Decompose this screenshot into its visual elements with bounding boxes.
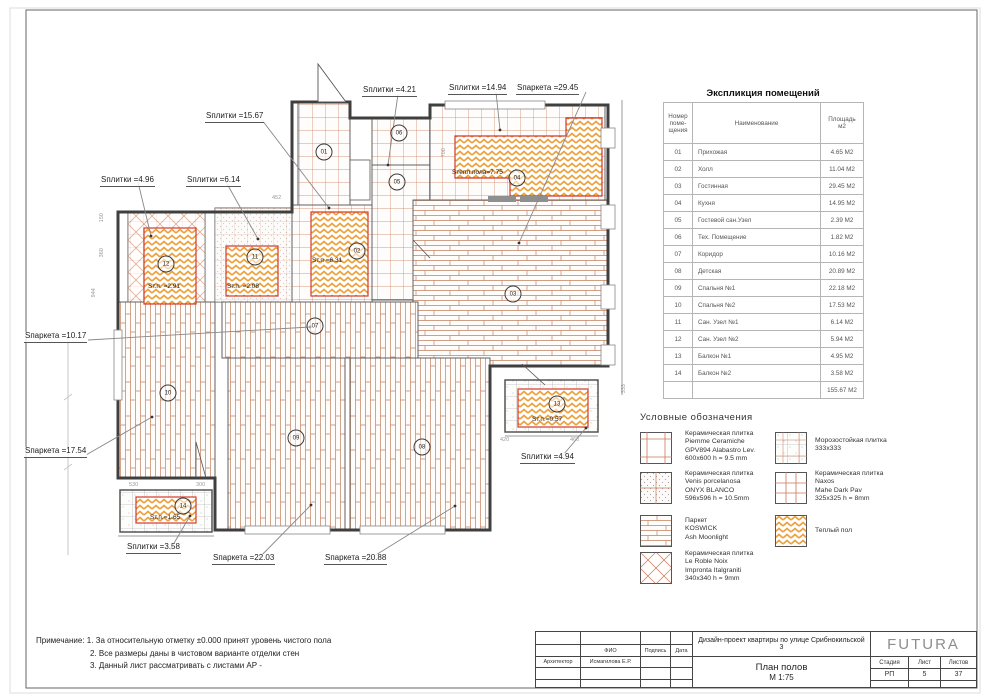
legend-swatch-naxos bbox=[775, 472, 807, 504]
room-schedule-table: Номер поме- щения Наименование Площадь м… bbox=[663, 102, 864, 399]
legend-title: Условные обозначения bbox=[640, 412, 753, 423]
warm-area-label: Sт.п.=0.57 bbox=[532, 417, 562, 424]
warm-area-label: Sтепл.пола=7.75 bbox=[452, 170, 503, 177]
window-right-1 bbox=[601, 128, 615, 148]
empty-cell bbox=[664, 382, 693, 399]
empty-cell bbox=[581, 668, 641, 679]
empty-cell bbox=[871, 681, 909, 687]
table-row: 06Тех. Помещение1.82 М2 bbox=[664, 229, 864, 246]
room-number: 01 bbox=[316, 144, 333, 161]
boundary-line bbox=[64, 335, 72, 555]
fio-header: ФИО bbox=[581, 645, 641, 656]
title-block-meta: FUTURA Стадия Лист Листов РП 5 37 bbox=[871, 632, 976, 687]
futura-logo: FUTURA bbox=[887, 636, 960, 653]
schedule-title: Экспликция помещений bbox=[663, 88, 863, 99]
col-room-area: Площадь м2 bbox=[821, 103, 864, 144]
room-area-cell: 4.65 М2 bbox=[821, 144, 864, 161]
room-number-cell: 10 bbox=[664, 297, 693, 314]
legend-item-label: Паркет KOSWICK Ash Moonlight bbox=[685, 517, 728, 542]
data-header: Дата bbox=[671, 645, 692, 656]
table-row: 04Кухня14.95 М2 bbox=[664, 195, 864, 212]
table-row: 03Гостинная29.45 М2 bbox=[664, 178, 864, 195]
table-row: 10Спальня №217.53 М2 bbox=[664, 297, 864, 314]
room-number: 07 bbox=[307, 318, 324, 335]
empty-cell bbox=[536, 645, 581, 656]
room-number: 12 bbox=[158, 256, 175, 273]
room-area-cell: 29.45 М2 bbox=[821, 178, 864, 195]
room-area-cell: 10.16 М2 bbox=[821, 246, 864, 263]
legend-item-label: Керамическая плитка Naxos Mahe Dark Pav … bbox=[815, 470, 883, 504]
legend-item-label: Керамическая плитка Piemme Ceramiche GPV… bbox=[685, 430, 755, 464]
room-name-cell: Тех. Помещение bbox=[693, 229, 821, 246]
room-name-cell: Балкон №1 bbox=[693, 348, 821, 365]
area-label: Sплитки =6.14 bbox=[186, 176, 241, 187]
table-row: 09Спальня №122.18 М2 bbox=[664, 280, 864, 297]
window-top bbox=[445, 101, 545, 109]
room-area-cell: 5.94 М2 bbox=[821, 331, 864, 348]
note-line-1: Примечание: 1. За относительную отметку … bbox=[36, 636, 331, 645]
window-right-3 bbox=[601, 285, 615, 309]
room-area-cell: 20.89 М2 bbox=[821, 263, 864, 280]
podpis-header: Подпись bbox=[641, 645, 671, 656]
sheets-total: 37 bbox=[941, 669, 976, 680]
signature-cell bbox=[641, 657, 671, 667]
legend-item-label: Теплый пол bbox=[815, 527, 852, 535]
sheet-scale: М 1:75 bbox=[769, 673, 793, 682]
room-name-cell: Коридор bbox=[693, 246, 821, 263]
table-row: 01Прихожая4.65 М2 bbox=[664, 144, 864, 161]
area-label: Sплитки =4.94 bbox=[520, 453, 575, 464]
legend-swatch-onyx bbox=[640, 472, 672, 504]
room-name-cell: Гостинная bbox=[693, 178, 821, 195]
area-label: Sпаркета =22.03 bbox=[212, 554, 275, 565]
legend-item-label: Керамическая плитка Venis porcelanosa ON… bbox=[685, 470, 753, 504]
area-label: Sпаркета =17.54 bbox=[24, 447, 87, 458]
window-right-2 bbox=[601, 205, 615, 229]
area-label: Sпаркета =29.45 bbox=[516, 84, 579, 95]
empty-cell bbox=[671, 680, 692, 687]
room-name-cell: Сан. Узел №1 bbox=[693, 314, 821, 331]
dimension: 360 bbox=[100, 248, 106, 257]
title-block-signatures: ФИО Подпись Дата Архитектор Исмагилова Е… bbox=[536, 632, 693, 687]
room-number: 05 bbox=[389, 174, 406, 191]
warm-area-label: Sт.п =6.31 bbox=[312, 258, 342, 265]
area-label: Sплитки =15.67 bbox=[205, 112, 264, 123]
dimension: 333 bbox=[622, 384, 628, 393]
room-area-cell: 17.53 М2 bbox=[821, 297, 864, 314]
room-number-cell: 03 bbox=[664, 178, 693, 195]
dimension: 530 bbox=[129, 483, 138, 489]
dimension: 460 bbox=[570, 438, 579, 444]
warm-area-label: Sт.п.=1.65 bbox=[150, 515, 180, 522]
area-label: Sплитки =4.96 bbox=[100, 176, 155, 187]
dimension: 700 bbox=[442, 148, 448, 157]
window-right-4 bbox=[601, 345, 615, 365]
room-number: 09 bbox=[288, 430, 305, 447]
empty-cell bbox=[536, 632, 581, 644]
room-name-cell: Прихожая bbox=[693, 144, 821, 161]
table-row: 08Детская20.89 М2 bbox=[664, 263, 864, 280]
legend-swatch-parquet bbox=[640, 515, 672, 547]
window-left bbox=[114, 330, 122, 400]
room-name-cell: Балкон №2 bbox=[693, 365, 821, 382]
area-label: Sплитки =3.58 bbox=[126, 543, 181, 554]
table-row: 14Балкон №23.58 М2 bbox=[664, 365, 864, 382]
empty-cell bbox=[641, 668, 671, 679]
project-name: Дизайн-проект квартиры по улице Срибноки… bbox=[693, 632, 870, 657]
room-number: 10 bbox=[160, 385, 177, 402]
room-number: 03 bbox=[505, 286, 522, 303]
empty-cell bbox=[581, 632, 641, 644]
room-name-cell: Спальня №1 bbox=[693, 280, 821, 297]
room-number-cell: 05 bbox=[664, 212, 693, 229]
empty-cell bbox=[671, 632, 692, 644]
room-area-cell: 1.82 М2 bbox=[821, 229, 864, 246]
room-number-cell: 04 bbox=[664, 195, 693, 212]
schedule-header-row: Номер поме- щения Наименование Площадь м… bbox=[664, 103, 864, 144]
table-row: 13Балкон №14.95 М2 bbox=[664, 348, 864, 365]
room-number: 14 bbox=[175, 498, 192, 515]
room-number-cell: 12 bbox=[664, 331, 693, 348]
room-number-cell: 01 bbox=[664, 144, 693, 161]
warm-area-label: Sт.п. =2.08 bbox=[227, 284, 259, 291]
room-area-cell: 6.14 М2 bbox=[821, 314, 864, 331]
legend-swatch-frost bbox=[775, 432, 807, 464]
empty-cell bbox=[941, 681, 976, 687]
title-block: ФИО Подпись Дата Архитектор Исмагилова Е… bbox=[535, 631, 977, 688]
schedule-total-row: 155.67 М2 bbox=[664, 382, 864, 399]
room-number-cell: 09 bbox=[664, 280, 693, 297]
col-room-name: Наименование bbox=[693, 103, 821, 144]
room-number-cell: 02 bbox=[664, 161, 693, 178]
room-area-cell: 11.04 М2 bbox=[821, 161, 864, 178]
room-area-cell: 2.39 М2 bbox=[821, 212, 864, 229]
sheet-header: Лист bbox=[909, 657, 941, 668]
room-name-cell: Гостевой сан.Узел bbox=[693, 212, 821, 229]
sheet-title: План полов bbox=[756, 662, 808, 673]
room-number: 11 bbox=[247, 249, 264, 266]
shaft-box bbox=[350, 160, 370, 200]
table-row: 07Коридор10.16 М2 bbox=[664, 246, 864, 263]
dimension: 452 bbox=[272, 196, 281, 202]
room-number-cell: 07 bbox=[664, 246, 693, 263]
sheets-header: Листов bbox=[941, 657, 976, 668]
area-label: Sплитки =14.94 bbox=[448, 84, 507, 95]
window-bottom-1 bbox=[245, 526, 330, 534]
empty-cell bbox=[641, 632, 671, 644]
room-name-cell: Кухня bbox=[693, 195, 821, 212]
date-cell bbox=[671, 657, 692, 667]
room-number-cell: 14 bbox=[664, 365, 693, 382]
dimension: 300 bbox=[196, 483, 205, 489]
empty-cell bbox=[671, 668, 692, 679]
table-row: 02Холл11.04 М2 bbox=[664, 161, 864, 178]
room-number-cell: 13 bbox=[664, 348, 693, 365]
legend-swatch-warmfloor bbox=[775, 515, 807, 547]
legend-item-label: Керамическая плитка Le Roble Noix Impron… bbox=[685, 550, 753, 584]
table-row: 11Сан. Узел №16.14 М2 bbox=[664, 314, 864, 331]
table-row: 05Гостевой сан.Узел2.39 М2 bbox=[664, 212, 864, 229]
room-area-cell: 22.18 М2 bbox=[821, 280, 864, 297]
dimension: 420 bbox=[500, 438, 509, 444]
room-number-cell: 11 bbox=[664, 314, 693, 331]
room-number: 04 bbox=[509, 170, 526, 187]
empty-cell bbox=[536, 680, 581, 687]
table-row: 12Сан. Узел №25.94 М2 bbox=[664, 331, 864, 348]
room-number-cell: 08 bbox=[664, 263, 693, 280]
room-number: 02 bbox=[349, 243, 366, 260]
title-block-project: Дизайн-проект квартиры по улице Срибноки… bbox=[693, 632, 871, 687]
entry-door-swing bbox=[318, 64, 346, 102]
empty-cell bbox=[641, 680, 671, 687]
note-line-2: 2. Все размеры даны в чистовом варианте … bbox=[90, 649, 299, 658]
drawing-sheet: Sплитки =15.67 Sплитки =4.21 Sплитки =14… bbox=[0, 0, 988, 699]
empty-cell bbox=[909, 681, 941, 687]
room-name-cell: Спальня №2 bbox=[693, 297, 821, 314]
sliding-door-2 bbox=[520, 196, 548, 202]
room-area-cell: 14.95 М2 bbox=[821, 195, 864, 212]
empty-cell bbox=[536, 668, 581, 679]
stage-value: РП bbox=[871, 669, 909, 680]
room-number: 06 bbox=[391, 125, 408, 142]
architect-name: Исмагилова Е.Р. bbox=[581, 657, 641, 667]
room-name-cell: Холл bbox=[693, 161, 821, 178]
sheet-title-cell: План полов М 1:75 bbox=[693, 657, 870, 687]
empty-cell bbox=[693, 382, 821, 399]
stage-header: Стадия bbox=[871, 657, 909, 668]
room-09-floor bbox=[228, 358, 345, 530]
room-number: 13 bbox=[549, 396, 566, 413]
area-label: Sпаркета =20.88 bbox=[324, 554, 387, 565]
legend-swatch-piemme bbox=[640, 432, 672, 464]
dimension: 150 bbox=[100, 213, 106, 222]
warm-area-label: Sт.п. =2.91 bbox=[148, 284, 180, 291]
sheet-number: 5 bbox=[909, 669, 941, 680]
sliding-door-1 bbox=[488, 196, 516, 202]
room-name-cell: Детская bbox=[693, 263, 821, 280]
window-bottom-2 bbox=[360, 526, 445, 534]
col-room-number: Номер поме- щения bbox=[664, 103, 693, 144]
logo-cell: FUTURA bbox=[871, 632, 976, 657]
total-area-cell: 155.67 М2 bbox=[821, 382, 864, 399]
note-line-3: 3. Данный лист рассматривать с листами А… bbox=[90, 661, 262, 670]
dimension: 944 bbox=[92, 288, 98, 297]
room-number: 08 bbox=[414, 439, 431, 456]
role-cell: Архитектор bbox=[536, 657, 581, 667]
area-label: Sпаркета =10.17 bbox=[24, 332, 87, 343]
legend-swatch-leroble bbox=[640, 552, 672, 584]
legend-item-label: Морозостойкая плитка 333x333 bbox=[815, 437, 887, 454]
room-area-cell: 4.95 М2 bbox=[821, 348, 864, 365]
empty-cell bbox=[581, 680, 641, 687]
room-area-cell: 3.58 М2 bbox=[821, 365, 864, 382]
room-number-cell: 06 bbox=[664, 229, 693, 246]
area-label: Sплитки =4.21 bbox=[362, 86, 417, 97]
room-03-floor bbox=[413, 200, 607, 366]
room-name-cell: Сан. Узел №2 bbox=[693, 331, 821, 348]
